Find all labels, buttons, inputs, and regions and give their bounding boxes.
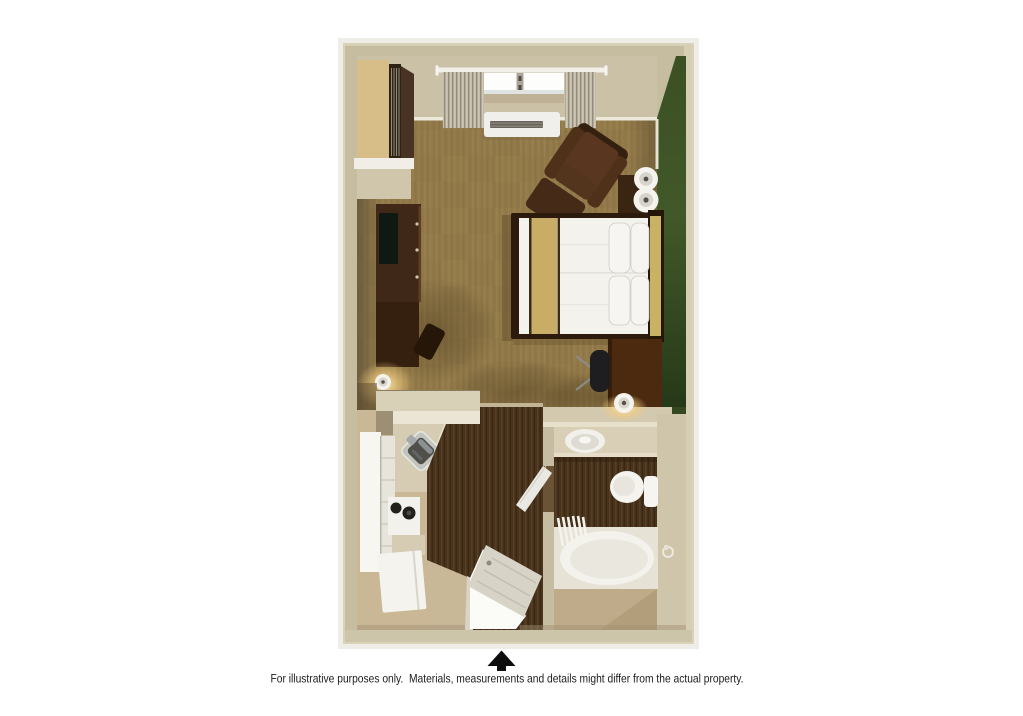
svg-text:For illustrative purposes only: For illustrative purposes only. Material… [271,672,744,686]
